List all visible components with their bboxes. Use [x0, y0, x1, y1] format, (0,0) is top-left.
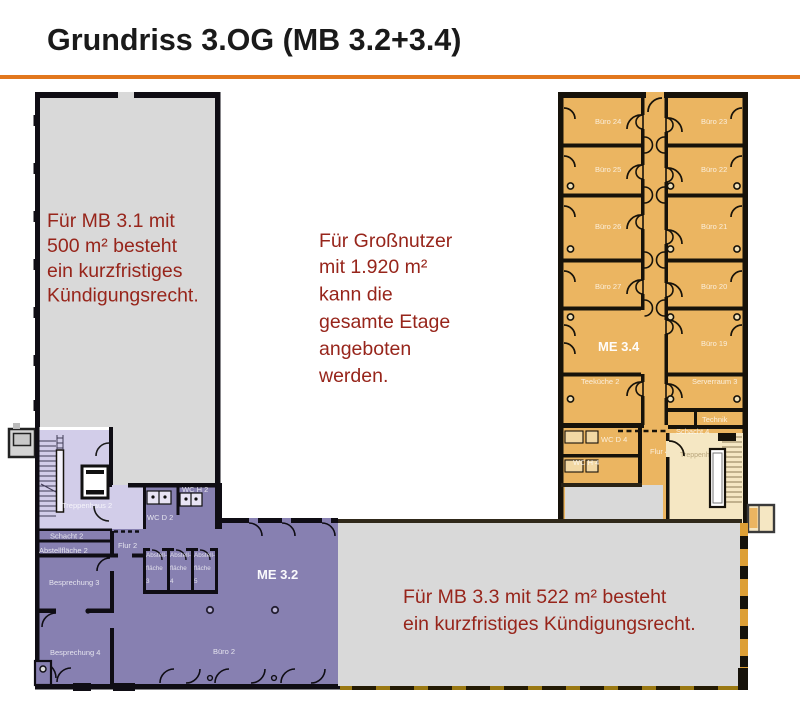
svg-text:Für Großnutzer: Für Großnutzer [319, 230, 453, 252]
svg-text:ME 3.4: ME 3.4 [598, 339, 640, 354]
svg-text:Für MB 3.3 mit 522 m² besteht: Für MB 3.3 mit 522 m² besteht [403, 586, 667, 608]
svg-text:Abstell-: Abstell- [194, 552, 215, 559]
svg-text:fläche: fläche [170, 565, 187, 572]
svg-text:500 m² besteht: 500 m² besteht [47, 235, 178, 257]
svg-text:fläche: fläche [194, 565, 211, 572]
svg-text:Büro 19: Büro 19 [701, 339, 727, 348]
svg-text:ein kurzfristiges: ein kurzfristiges [47, 260, 183, 282]
svg-text:3: 3 [146, 578, 150, 585]
svg-text:Büro 24: Büro 24 [595, 117, 621, 126]
svg-text:Büro 21: Büro 21 [701, 222, 727, 231]
svg-text:Büro 23: Büro 23 [701, 117, 727, 126]
svg-text:Schacht 4: Schacht 4 [676, 427, 709, 436]
svg-text:Abstell-: Abstell- [146, 552, 167, 559]
svg-text:gesamte Etage: gesamte Etage [319, 311, 450, 333]
svg-text:Besprechung 3: Besprechung 3 [49, 578, 99, 587]
svg-text:ME 3.2: ME 3.2 [257, 567, 298, 582]
svg-text:fläche: fläche [146, 565, 163, 572]
svg-text:Teeküche 2: Teeküche 2 [581, 377, 619, 386]
svg-text:angeboten: angeboten [319, 338, 411, 360]
svg-text:Technik: Technik [702, 415, 728, 424]
svg-text:WC H 4: WC H 4 [573, 458, 599, 467]
svg-text:Grundriss 3.OG (MB 3.2+3.4): Grundriss 3.OG (MB 3.2+3.4) [47, 23, 461, 57]
svg-text:Schacht 2: Schacht 2 [50, 532, 83, 541]
svg-text:WC H 2: WC H 2 [182, 485, 208, 494]
svg-text:Büro 20: Büro 20 [701, 282, 727, 291]
svg-text:Büro 22: Büro 22 [701, 165, 727, 174]
svg-text:5: 5 [194, 578, 198, 585]
svg-text:WC D 2: WC D 2 [147, 513, 173, 522]
svg-text:kann die: kann die [319, 284, 393, 306]
svg-text:Büro 2: Büro 2 [213, 647, 235, 656]
svg-text:Abstell-: Abstell- [170, 552, 191, 559]
svg-text:Büro 26: Büro 26 [595, 222, 621, 231]
svg-text:4: 4 [170, 578, 174, 585]
svg-text:WC D 4: WC D 4 [601, 435, 627, 444]
svg-text:ein kurzfristiges Kündigungsre: ein kurzfristiges Kündigungsrecht. [403, 613, 696, 635]
svg-text:Besprechung 4: Besprechung 4 [50, 648, 100, 657]
svg-text:mit 1.920 m²: mit 1.920 m² [319, 256, 428, 278]
svg-text:Büro 25: Büro 25 [595, 165, 621, 174]
svg-text:werden.: werden. [318, 365, 388, 387]
svg-text:Kündigungsrecht.: Kündigungsrecht. [47, 285, 199, 307]
svg-text:Treppenhaus 2: Treppenhaus 2 [62, 501, 112, 510]
svg-text:Serverraum 3: Serverraum 3 [692, 377, 737, 386]
svg-text:Flur 2: Flur 2 [118, 541, 137, 550]
svg-text:Büro 27: Büro 27 [595, 282, 621, 291]
svg-text:Für MB 3.1 mit: Für MB 3.1 mit [47, 210, 175, 232]
